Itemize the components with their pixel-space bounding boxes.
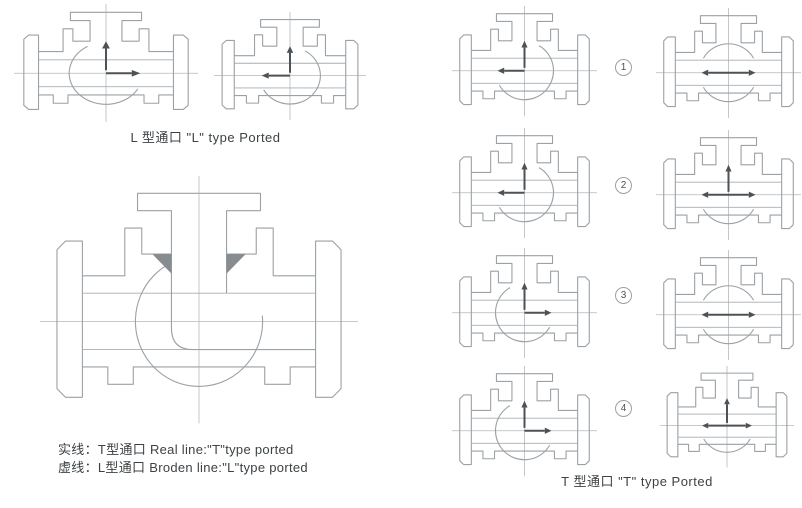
arrowhead bbox=[497, 190, 504, 196]
l-passage-outline bbox=[171, 254, 315, 349]
position-marker-1: 1 bbox=[615, 59, 632, 76]
valve-svg bbox=[214, 12, 366, 124]
valve-l-ported-1 bbox=[14, 4, 198, 126]
valve-t-pos3-right bbox=[656, 250, 801, 364]
right-flange bbox=[578, 395, 590, 465]
arrowhead bbox=[521, 401, 527, 408]
arrowhead bbox=[545, 310, 552, 316]
arrowhead bbox=[102, 41, 110, 48]
valve-svg bbox=[40, 176, 358, 432]
left-flange bbox=[667, 393, 678, 457]
valve-svg bbox=[656, 130, 801, 244]
right-flange bbox=[578, 157, 590, 227]
left-flange bbox=[24, 35, 39, 109]
right-flange bbox=[782, 159, 794, 229]
valve-t-pos4-right bbox=[660, 366, 794, 471]
arrowhead bbox=[749, 192, 756, 198]
arrowhead bbox=[497, 68, 504, 74]
valve-t-pos1-right bbox=[656, 8, 801, 122]
right-flange bbox=[776, 393, 787, 457]
valve-sectional-cutaway bbox=[40, 176, 358, 432]
arrowhead bbox=[287, 46, 293, 53]
arrowhead bbox=[521, 283, 527, 290]
valve-svg bbox=[452, 6, 597, 120]
ball-arc bbox=[499, 46, 553, 100]
valve-svg bbox=[14, 4, 198, 126]
legend-broken-line: 虚线：L型通口 Broden line:"L"type ported bbox=[58, 459, 308, 477]
valve-svg bbox=[656, 250, 801, 364]
arrowhead bbox=[521, 41, 527, 48]
ball-arc bbox=[495, 288, 549, 342]
position-marker-3: 3 bbox=[615, 287, 632, 304]
left-flange bbox=[460, 395, 472, 465]
right-flange bbox=[346, 40, 358, 108]
arrowhead bbox=[746, 423, 752, 429]
right-flange bbox=[316, 241, 341, 397]
right-flange bbox=[578, 35, 590, 105]
caption-l-type: L 型通口 "L" type Ported bbox=[103, 127, 308, 146]
arrowhead bbox=[262, 73, 269, 79]
caption-t-type: T 型通口 "T" type Ported bbox=[512, 471, 762, 490]
left-flange bbox=[460, 35, 472, 105]
valve-svg bbox=[660, 366, 794, 471]
position-marker-4: 4 bbox=[615, 400, 632, 417]
arrowhead bbox=[725, 165, 731, 172]
ball-arc bbox=[69, 46, 138, 104]
right-flange bbox=[173, 35, 188, 109]
valve-l-ported-2 bbox=[214, 12, 366, 124]
flow-arrows bbox=[102, 41, 140, 76]
arrowhead bbox=[702, 423, 708, 429]
flow-arrows bbox=[497, 163, 527, 196]
seat-detail-right bbox=[227, 254, 246, 274]
arrowhead bbox=[724, 398, 730, 404]
arrowhead bbox=[701, 192, 708, 198]
valve-svg bbox=[656, 8, 801, 122]
flow-arrows bbox=[521, 283, 551, 316]
legend-line-types: 实线：T型通口 Real line:"T"type ported 虚线：L型通口… bbox=[58, 441, 308, 477]
valve-t-pos2-right bbox=[656, 130, 801, 244]
left-flange bbox=[460, 157, 472, 227]
arrowhead bbox=[132, 70, 141, 77]
left-flange bbox=[664, 37, 676, 107]
left-flange bbox=[664, 279, 676, 349]
right-flange bbox=[578, 277, 590, 347]
ball-arc bbox=[499, 168, 553, 222]
position-marker-2: 2 bbox=[615, 177, 632, 194]
ball-arc bbox=[264, 51, 321, 104]
arrowhead bbox=[701, 70, 708, 76]
valve-t-pos4-left bbox=[452, 366, 597, 480]
flow-arrows bbox=[521, 401, 551, 434]
right-flange bbox=[782, 279, 794, 349]
seat-detail-left bbox=[152, 254, 171, 274]
valve-svg bbox=[452, 366, 597, 480]
arrowhead bbox=[701, 312, 708, 318]
arrowhead bbox=[545, 428, 552, 434]
valve-svg bbox=[452, 128, 597, 242]
valve-t-pos1-left bbox=[452, 6, 597, 120]
arrowhead bbox=[749, 312, 756, 318]
arrowhead bbox=[749, 70, 756, 76]
valve-diagram-sheet: L 型通口 "L" type Ported 实线：T型通口 Real line:… bbox=[0, 0, 802, 508]
flow-arrows bbox=[262, 46, 294, 78]
right-flange bbox=[782, 37, 794, 107]
valve-t-pos2-left bbox=[452, 128, 597, 242]
valve-svg bbox=[452, 248, 597, 362]
valve-t-pos3-left bbox=[452, 248, 597, 362]
left-flange bbox=[664, 159, 676, 229]
left-flange bbox=[222, 40, 234, 108]
flow-arrows bbox=[497, 41, 527, 74]
left-flange bbox=[460, 277, 472, 347]
left-flange bbox=[57, 241, 82, 397]
ball-arc bbox=[495, 406, 549, 460]
arrowhead bbox=[521, 163, 527, 170]
legend-real-line: 实线：T型通口 Real line:"T"type ported bbox=[58, 441, 308, 459]
